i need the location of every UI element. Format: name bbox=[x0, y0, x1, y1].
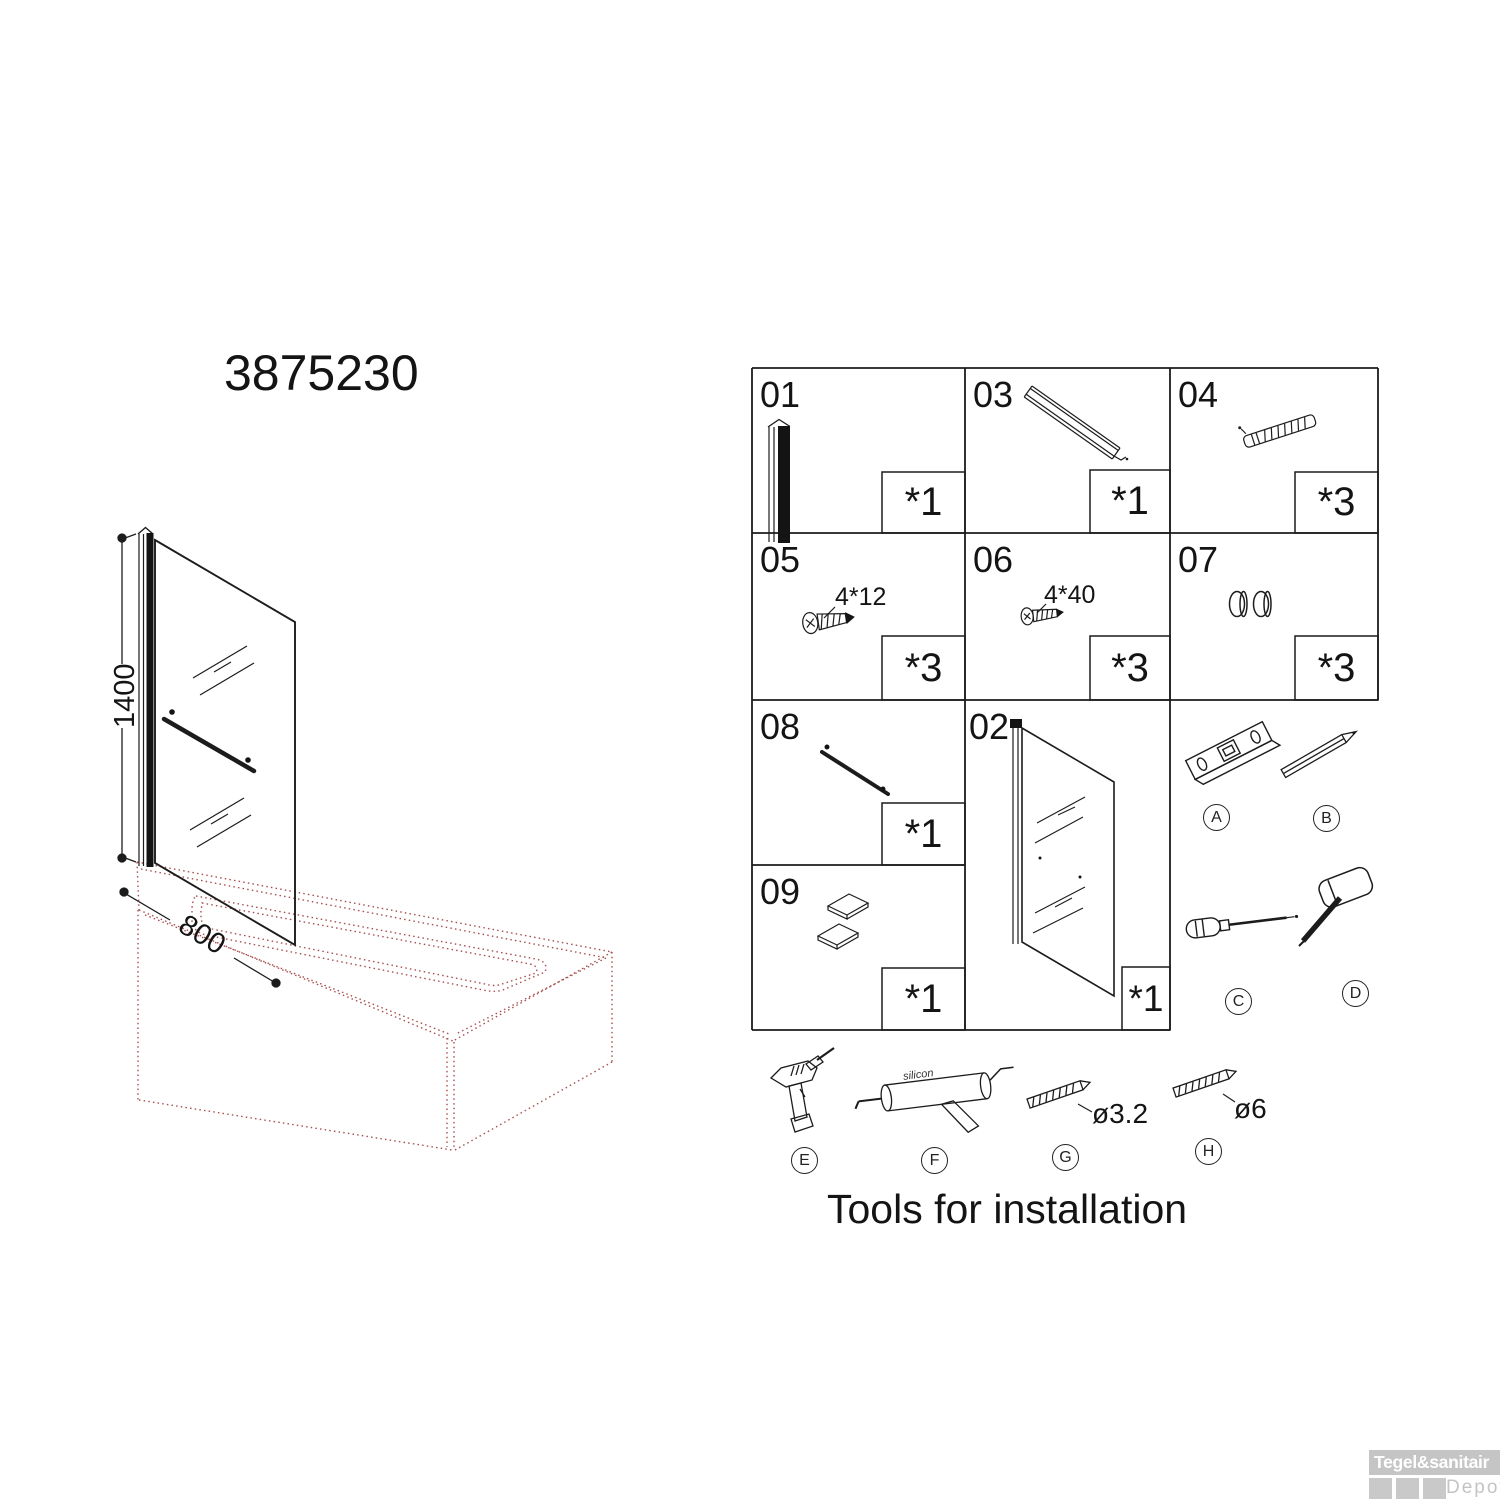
part-06-number: 06 bbox=[973, 539, 1013, 581]
tool-badge-drill: E bbox=[791, 1147, 818, 1174]
part-06-quantity: *3 bbox=[1090, 636, 1170, 700]
tool-badge-level: A bbox=[1203, 804, 1230, 831]
glass-reflection-marks bbox=[190, 646, 254, 847]
part-02-number: 02 bbox=[969, 706, 1009, 748]
bath-outline bbox=[137, 862, 612, 1150]
quantity-boxes bbox=[882, 470, 1378, 1030]
spirit-level-icon bbox=[1186, 719, 1280, 786]
tool-badge-caulk-gun: F bbox=[921, 1147, 948, 1174]
towel-bar bbox=[164, 709, 254, 771]
tools-caption: Tools for installation bbox=[827, 1186, 1187, 1233]
part-02-glass-panel-icon bbox=[1010, 719, 1114, 996]
part-01-wall-profile-icon bbox=[768, 420, 790, 544]
part-07-number: 07 bbox=[1178, 539, 1218, 581]
part-03-quantity: *1 bbox=[1090, 470, 1170, 533]
screwdriver-icon bbox=[1185, 907, 1299, 939]
watermark-sub: Depot bbox=[1446, 1477, 1500, 1499]
tool-badge-bit-small: G bbox=[1052, 1144, 1079, 1171]
part-04-number: 04 bbox=[1178, 374, 1218, 416]
part-05-number: 05 bbox=[760, 539, 800, 581]
part-04-wall-plug-icon bbox=[1238, 403, 1317, 448]
part-08-quantity: *1 bbox=[882, 803, 965, 865]
part-09-quantity: *1 bbox=[882, 968, 965, 1030]
pencil-icon bbox=[1281, 728, 1358, 778]
watermark-square bbox=[1423, 1478, 1446, 1499]
part-01-number: 01 bbox=[760, 374, 800, 416]
caulk-gun-icon bbox=[853, 1067, 1021, 1145]
installation-sheet: 3875230 1400 800 01 03 04 05 06 07 08 02… bbox=[0, 0, 1500, 1500]
drill-bit-6-icon bbox=[1173, 1067, 1238, 1102]
product-code: 3875230 bbox=[224, 344, 419, 402]
drill-bit-3.2-icon bbox=[1027, 1078, 1092, 1112]
part-09-number: 09 bbox=[760, 871, 800, 913]
part-03-seal-strip-icon bbox=[1024, 386, 1128, 460]
part-03-number: 03 bbox=[973, 374, 1013, 416]
part-07-quantity: *3 bbox=[1295, 636, 1378, 700]
part-02-quantity: *1 bbox=[1122, 967, 1170, 1030]
part-09-cover-caps-icon bbox=[818, 894, 868, 949]
drill-icon bbox=[771, 1048, 834, 1132]
tool-badge-pencil: B bbox=[1313, 805, 1340, 832]
mallet-icon bbox=[1299, 865, 1375, 946]
bit-diameter-large-label: ø6 bbox=[1234, 1093, 1267, 1125]
part-05-quantity: *3 bbox=[882, 636, 965, 700]
parts-grid-lines bbox=[752, 368, 1378, 1030]
tool-badge-bit-large: H bbox=[1195, 1138, 1222, 1165]
line-art bbox=[0, 0, 1500, 1500]
height-dimension-label: 1400 bbox=[109, 664, 139, 728]
bit-diameter-small-label: ø3.2 bbox=[1092, 1098, 1148, 1130]
part-07-caps-icon bbox=[1230, 592, 1272, 617]
part-04-quantity: *3 bbox=[1295, 472, 1378, 533]
screw-06-size-label: 4*40 bbox=[1044, 581, 1095, 610]
screw-05-size-label: 4*12 bbox=[835, 583, 886, 612]
watermark-brand: Tegel&sanitair bbox=[1369, 1450, 1500, 1475]
tool-badge-mallet: D bbox=[1342, 980, 1369, 1007]
tool-badge-screwdriver: C bbox=[1225, 988, 1252, 1015]
part-08-towel-bar-icon bbox=[822, 745, 888, 795]
watermark-square bbox=[1396, 1478, 1419, 1499]
watermark-square-drop bbox=[1369, 1478, 1392, 1499]
part-01-quantity: *1 bbox=[882, 472, 965, 533]
glass-screen bbox=[138, 528, 295, 946]
part-08-number: 08 bbox=[760, 706, 800, 748]
